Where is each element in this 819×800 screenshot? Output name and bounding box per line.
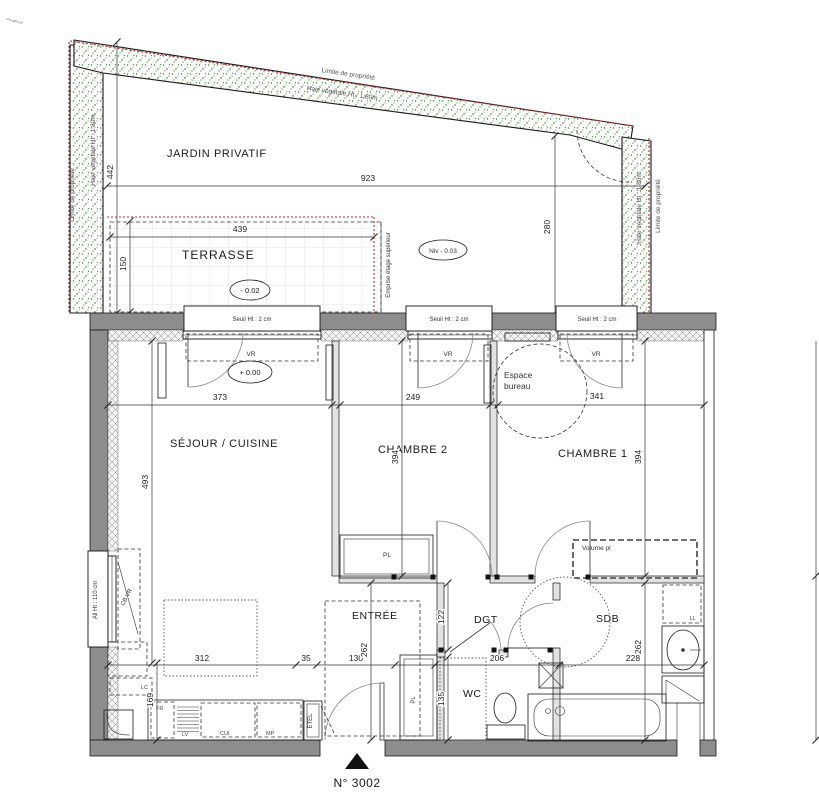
property-limit-right-label: Limite de propriété: [655, 179, 662, 233]
dishwasher-label: LV: [182, 732, 189, 738]
wall-bottom-right: [385, 740, 677, 756]
dim-394-b: 394: [633, 450, 643, 464]
closet-pl-label: PL: [383, 552, 391, 559]
garden-level: Niv - 0.03: [429, 248, 457, 255]
electrical-label: ETEL: [308, 713, 314, 729]
upper-floor-label: Emprise étage supérieur: [386, 232, 392, 297]
closet-pl-2: [400, 655, 437, 740]
dim-280: 280: [542, 220, 552, 234]
left-window-sill-label: All Ht : 110 cm: [93, 581, 99, 620]
wc-label: WC: [463, 688, 482, 700]
dim-206: 206: [490, 653, 504, 663]
volume-pl-label: Volume pl: [582, 545, 611, 552]
dim-35: 35: [301, 653, 311, 663]
desk-label-1: Espace: [504, 370, 533, 380]
wall-right: [704, 330, 714, 740]
fixtures: [104, 333, 704, 741]
floor-plan-drawing: JARDIN PRIVATIF Limite de propriété Haie…: [0, 0, 819, 800]
property-limit-left-label: Limite de propriété: [69, 168, 76, 222]
dim-122: 122: [436, 610, 446, 624]
living-label: SÉJOUR / CUISINE: [170, 437, 278, 450]
property-line-top: [70, 41, 634, 126]
sill-label-2: Seuil Ht : 2 cm: [429, 317, 468, 323]
wall-left: [90, 330, 108, 740]
living-table: [164, 600, 257, 676]
kitchen-label: CUI: [220, 731, 230, 737]
garden-label: JARDIN PRIVATIF: [167, 148, 267, 160]
dim-249: 249: [406, 392, 420, 402]
labels: JARDIN PRIVATIF Limite de propriété Haie…: [69, 67, 696, 790]
entrance-triangle: [345, 753, 369, 769]
vr-label-1: VR: [246, 351, 255, 358]
unit-number: N° 3002: [334, 776, 381, 790]
desk-label-2: bureau: [504, 381, 531, 391]
dim-169: 169: [145, 693, 155, 707]
fridge-label: FR: [156, 706, 163, 712]
washer-label: LL: [690, 616, 696, 622]
hedge-left-label: Haie végétale Ht : 1,80m: [90, 114, 97, 186]
dim-923: 923: [361, 173, 375, 183]
dim-150: 150: [118, 257, 128, 271]
entrance-door-leaf: [380, 683, 384, 740]
dim-262-a: 262: [359, 643, 369, 657]
left-window-vr-label: CB VR: [120, 587, 134, 607]
mp-label: MP: [266, 731, 275, 737]
vr-label-2: VR: [443, 351, 452, 358]
lc-label: LC: [141, 685, 148, 691]
terrace-level: - 0.02: [240, 286, 259, 295]
dim-373: 373: [213, 392, 227, 402]
dim-312: 312: [195, 653, 209, 663]
vr-label-3: VR: [591, 351, 600, 358]
dim-442: 442: [105, 165, 115, 179]
bed2-label: CHAMBRE 2: [378, 444, 448, 456]
dim-493: 493: [140, 475, 150, 489]
dishwasher: [177, 707, 199, 732]
bath-label: SDB: [596, 613, 619, 625]
dim-262-b: 262: [633, 640, 643, 654]
wall-bottom-left: [90, 740, 320, 756]
living-level: + 0.00: [239, 368, 260, 377]
hedge-right-label: Haie végétale Ht : 1,80m: [636, 172, 643, 244]
dim-341: 341: [590, 391, 604, 401]
closet-pl2-label: PL: [411, 696, 417, 704]
bed1-label: CHAMBRE 1: [558, 448, 628, 460]
sill-label-3: Seuil Ht : 2 cm: [577, 317, 616, 323]
interior-dimensions: [105, 338, 819, 744]
dim-394-a: 394: [390, 450, 400, 464]
floor-plan-page: JARDIN PRIVATIF Limite de propriété Haie…: [0, 0, 819, 800]
sill-label-1: Seuil Ht : 2 cm: [232, 317, 271, 323]
terrace-label: TERRASSE: [182, 248, 255, 262]
corner-mark: [6, 19, 23, 23]
entry-label: ENTRÉE: [352, 609, 398, 622]
toilet: [494, 693, 516, 723]
dim-135: 135: [436, 692, 446, 706]
hall-label: DGT: [474, 614, 498, 626]
dim-439: 439: [233, 224, 247, 234]
